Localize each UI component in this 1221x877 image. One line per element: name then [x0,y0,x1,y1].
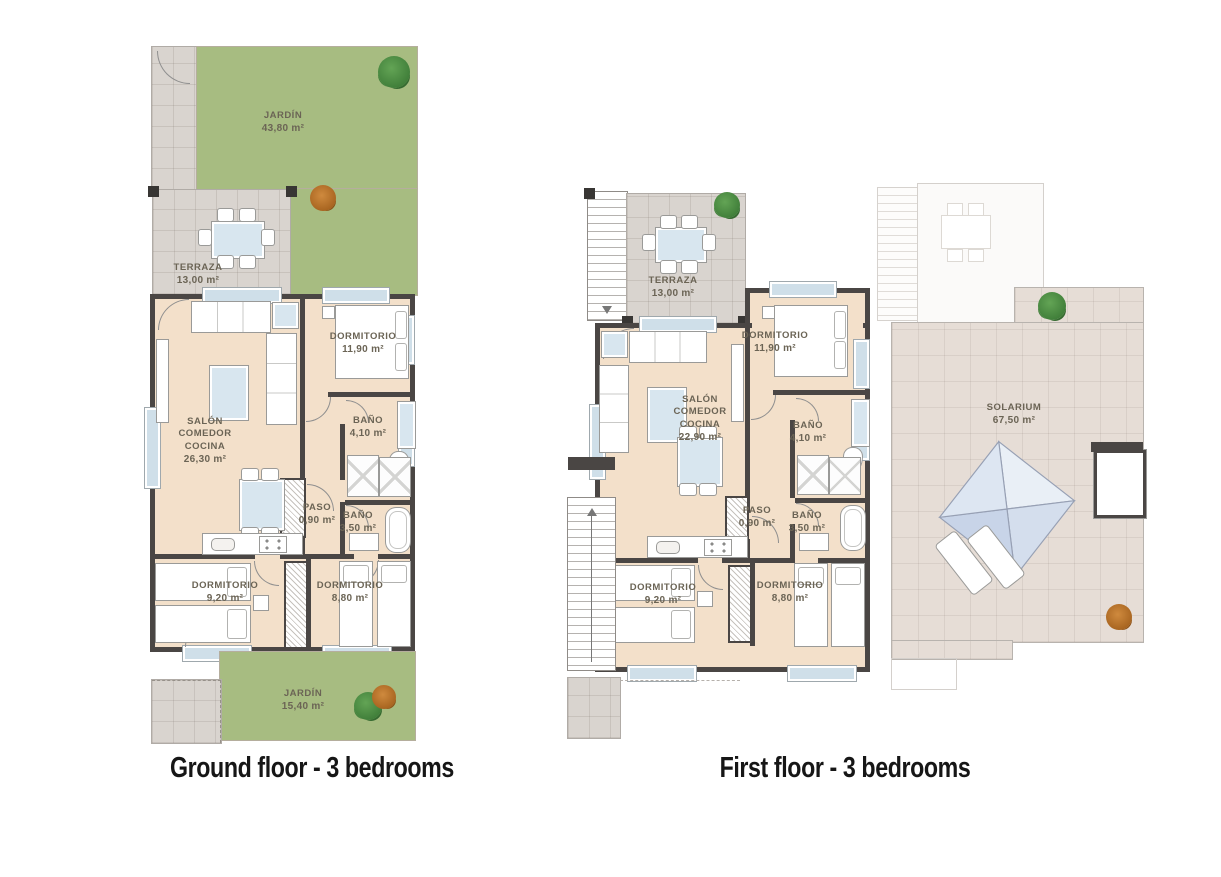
room-area: 9,20 m² [175,592,275,605]
wall [745,328,750,513]
room-label-terraza: TERRAZA 13,00 m² [158,262,238,287]
room-label-dormitorio2: DORMITORIO 9,20 m² [175,580,275,605]
dining-table [678,438,722,486]
chair [682,216,697,228]
room-name: JARDÍN [233,110,333,122]
room-name: DORMITORIO [740,580,840,592]
chair [680,484,696,495]
shower [830,458,860,494]
tree-icon [378,56,410,88]
window [788,666,856,681]
window [203,288,281,303]
wall [328,392,415,397]
chair-ghost [948,204,962,215]
room-area: 3,50 m² [777,522,837,535]
room-area: 26,30 m² [163,453,247,466]
nightstand [323,307,334,318]
stove [260,537,286,552]
chair [240,256,255,268]
dining-table [240,480,284,530]
room-area: 22,90 m² [658,431,742,444]
window [854,340,869,388]
sofa [600,366,628,452]
room-label-salon: SALÓN COMEDOR COCINA 22,90 m² [658,394,742,444]
chair-ghost [969,250,983,261]
dining-table [212,222,264,258]
shower [348,456,378,496]
ghost-outline [620,680,740,735]
wall [300,294,305,484]
room-name: SALÓN COMEDOR COCINA [163,416,247,453]
stair-direction-arrow [602,306,612,314]
first-floor-caption: First floor - 3 bedrooms [713,752,977,785]
wall-corner [584,188,595,199]
room-label-dormitorio1: DORMITORIO 11,90 m² [313,331,413,356]
room-label-dormitorio2: DORMITORIO 9,20 m² [613,582,713,607]
wall-corner [148,186,159,197]
side-table [273,303,298,328]
room-area: 13,00 m² [633,287,713,300]
room-label-solarium: SOLARIUM 67,50 m² [955,402,1073,427]
wall [795,498,870,503]
room-area: 4,10 m² [768,432,848,445]
chair [218,209,233,221]
garden-area [290,189,417,295]
chaise-sofa [267,334,296,424]
chair [242,469,258,480]
bush-icon [1106,604,1132,630]
wall [378,554,415,559]
room-label-dormitorio3: DORMITORIO 8,80 m² [740,580,840,605]
wall [280,554,354,559]
chair [199,230,211,245]
coffee-table [210,366,248,420]
dining-table-ghost [942,216,990,248]
room-name: DORMITORIO [725,330,825,342]
walkway [152,680,221,743]
walkway [568,678,620,738]
room-label-dormitorio1: DORMITORIO 11,90 m² [725,330,825,355]
room-name: DORMITORIO [175,580,275,592]
chair [643,235,655,250]
chair-ghost [948,250,962,261]
ghost-outline [892,659,956,689]
room-label-jardin-top: JARDÍN 43,80 m² [233,110,333,135]
room-area: 3,50 m² [328,522,388,535]
room-label-salon: SALÓN COMEDOR COCINA 26,30 m² [163,416,247,466]
room-name: SOLARIUM [955,402,1073,414]
bush-icon [310,185,336,211]
staircase-ghost [878,188,918,320]
bush-icon [1038,292,1066,320]
pillow [835,312,845,338]
stair-direction-arrow [587,508,597,516]
pillow [672,611,690,638]
room-label-bano1: BAÑO 4,10 m² [328,415,408,440]
chair [700,484,716,495]
solarium-floor [892,641,1012,659]
nightstand [763,307,774,318]
chair [262,230,274,245]
shower [380,458,410,496]
chair [240,209,255,221]
bathtub [386,508,410,552]
room-name: DORMITORIO [300,580,400,592]
stair-direction-arrow [591,514,592,662]
room-name: SALÓN COMEDOR COCINA [658,394,742,431]
room-name: JARDÍN [243,688,363,700]
side-table [602,332,627,357]
first-floor-plan: TERRAZA 13,00 m² [560,180,1155,745]
room-area: 11,90 m² [725,342,825,355]
room-label-bano2: BAÑO 3,50 m² [777,510,837,535]
room-name: BAÑO [328,415,408,427]
tv-sideboard [157,340,168,422]
chair [262,469,278,480]
wall [155,554,255,559]
wall [722,558,795,563]
room-label-bano1: BAÑO 4,10 m² [768,420,848,445]
sofa [630,332,706,362]
wall [568,457,615,470]
wall [773,390,870,395]
bathroom-sink [852,400,869,446]
kitchen-sink [657,542,679,553]
room-name: BAÑO [768,420,848,432]
solarium-floor [1015,288,1143,328]
room-area: 8,80 m² [740,592,840,605]
window [628,666,696,681]
wall [345,500,415,505]
room-name: TERRAZA [633,275,713,287]
chair [703,235,715,250]
window [640,317,716,332]
chair [661,261,676,273]
staircase [588,192,627,320]
pillow [228,610,246,638]
room-label-bano2: BAÑO 3,50 m² [328,510,388,535]
room-name: DORMITORIO [613,582,713,594]
chair [682,261,697,273]
room-name: BAÑO [328,510,388,522]
room-area: 8,80 m² [300,592,400,605]
dining-table [656,228,706,262]
stove [705,540,731,555]
ground-floor-caption: Ground floor - 3 bedrooms [170,752,410,785]
wall [818,558,865,563]
kitchen-sink [212,539,234,550]
bathroom-cabinet [800,534,828,550]
chair-ghost [969,204,983,215]
room-area: 4,10 m² [328,427,408,440]
room-area: 9,20 m² [613,594,713,607]
bathtub [841,506,865,550]
room-area: 43,80 m² [233,122,333,135]
room-name: TERRAZA [158,262,238,274]
window [770,282,836,297]
shower [798,456,828,494]
ground-floor-plan: JARDÍN 43,80 m² TERRAZA 13,00 m² [140,40,440,752]
room-label-terraza: TERRAZA 13,00 m² [633,275,713,300]
bathroom-cabinet [350,534,378,550]
window [323,288,389,303]
wall [1091,442,1143,452]
room-label-jardin-bottom: JARDÍN 15,40 m² [243,688,363,713]
pillow [835,342,845,368]
wall-corner [286,186,297,197]
stair-bulkhead [1094,450,1146,518]
bush-icon [372,685,396,709]
chair [661,216,676,228]
room-name: DORMITORIO [313,331,413,343]
room-area: 13,00 m² [158,274,238,287]
room-area: 11,90 m² [313,343,413,356]
sofa [192,302,270,332]
floorplan-page: JARDÍN 43,80 m² TERRAZA 13,00 m² [0,0,1221,877]
tree-icon [714,192,740,218]
room-area: 67,50 m² [955,414,1073,427]
room-name: BAÑO [777,510,837,522]
room-area: 15,40 m² [243,700,363,713]
room-label-dormitorio3: DORMITORIO 8,80 m² [300,580,400,605]
